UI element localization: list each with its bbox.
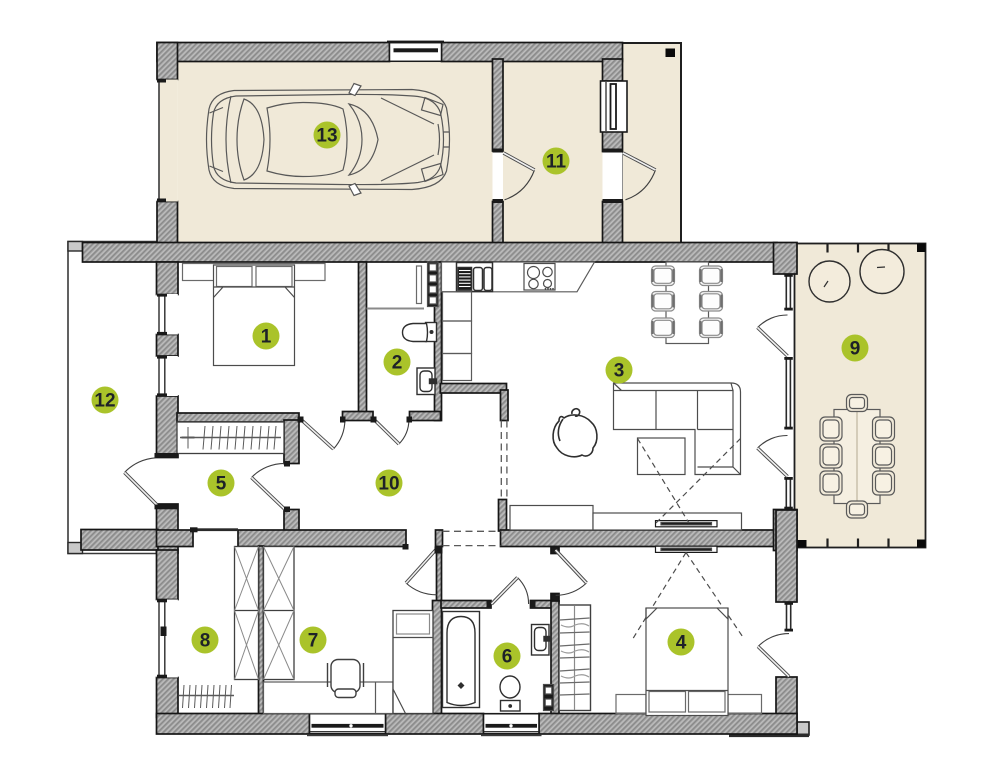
svg-text:6: 6 — [502, 647, 513, 668]
svg-text:4: 4 — [676, 633, 687, 654]
svg-text:10: 10 — [378, 474, 399, 495]
svg-text:12: 12 — [94, 391, 115, 412]
svg-text:5: 5 — [216, 474, 227, 495]
svg-text:2: 2 — [392, 353, 403, 374]
svg-text:3: 3 — [614, 361, 625, 382]
svg-text:1: 1 — [261, 327, 272, 348]
svg-text:8: 8 — [200, 631, 211, 652]
svg-text:7: 7 — [308, 631, 319, 652]
svg-text:11: 11 — [546, 152, 567, 173]
svg-text:9: 9 — [850, 339, 861, 360]
svg-text:13: 13 — [316, 126, 337, 147]
